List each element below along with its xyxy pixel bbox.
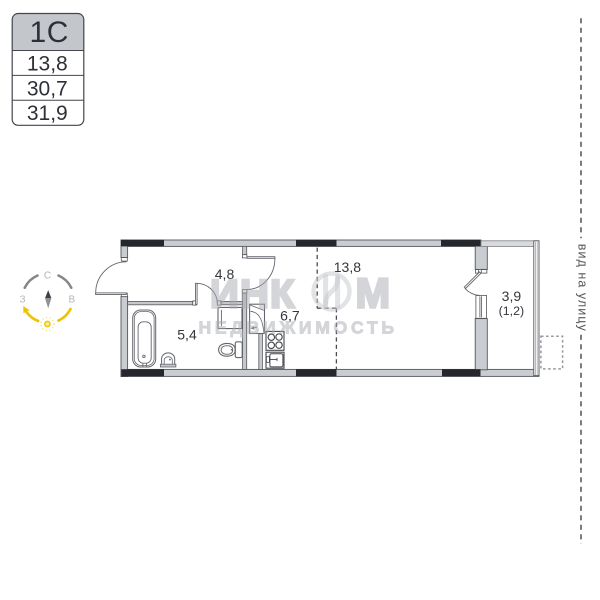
svg-text:31,9: 31,9 (27, 102, 68, 125)
svg-text:13,8: 13,8 (27, 53, 68, 76)
svg-text:1С: 1С (30, 16, 69, 49)
svg-text:5,4: 5,4 (177, 327, 197, 343)
svg-text:М: М (356, 270, 391, 317)
svg-text:В: В (68, 295, 75, 306)
svg-text:ИНК: ИНК (210, 273, 296, 317)
svg-text:(1,2): (1,2) (499, 304, 524, 318)
svg-text:С: С (44, 271, 51, 282)
svg-text:З: З (19, 295, 25, 306)
svg-text:вид на улицу: вид на улицу (576, 244, 590, 332)
svg-text:НЕДВИЖИМОСТЬ: НЕДВИЖИМОСТЬ (199, 318, 398, 338)
svg-text:3,9: 3,9 (502, 288, 522, 304)
svg-text:30,7: 30,7 (27, 77, 68, 100)
